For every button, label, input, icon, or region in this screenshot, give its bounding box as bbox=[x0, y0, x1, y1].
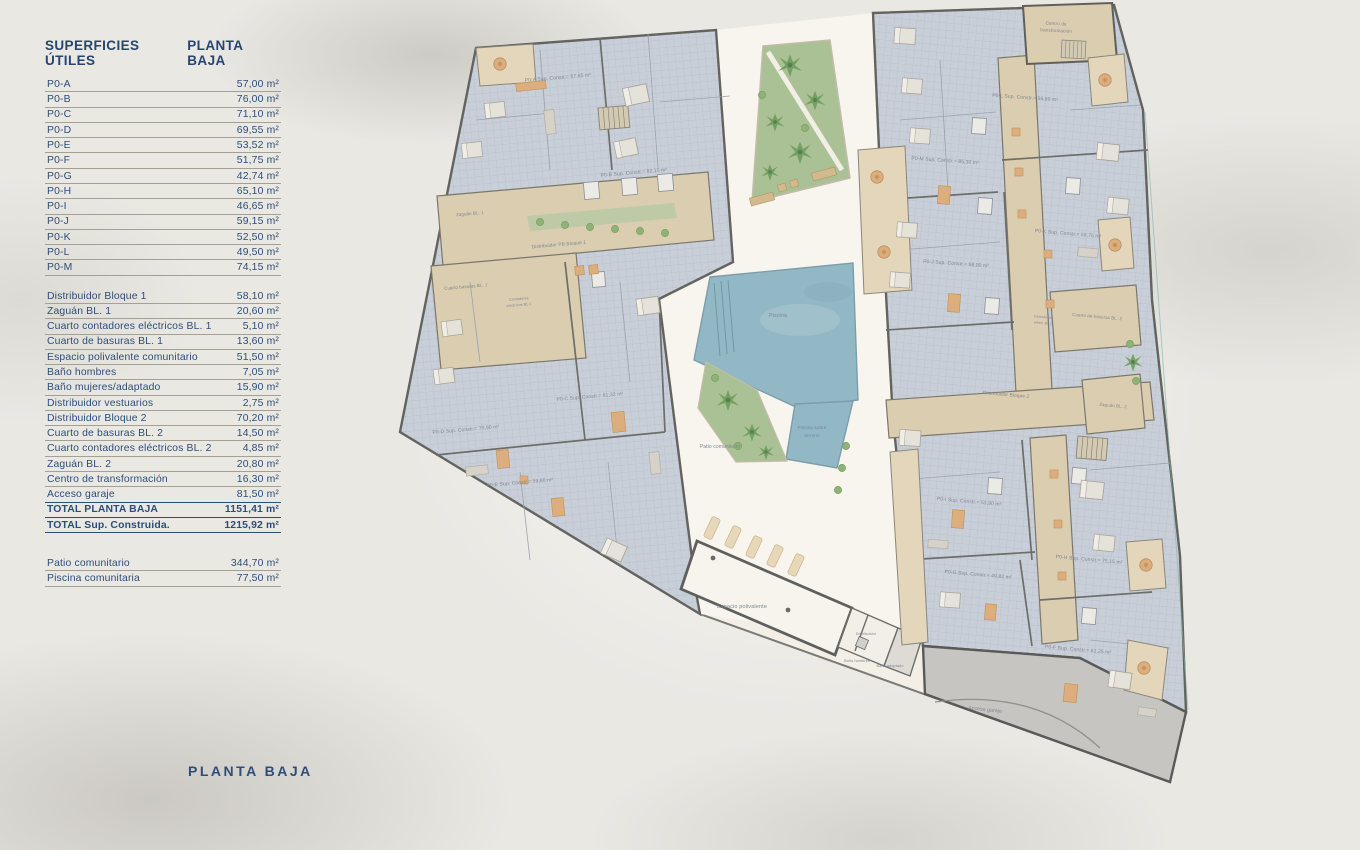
bush-icon bbox=[711, 374, 718, 381]
page: { "table": { "title_left": "SUPERFICIES … bbox=[0, 0, 1360, 850]
floor-plan: P0-A Sup. Constr.= 67,65 m² P0-B Sup. Co… bbox=[0, 0, 1360, 850]
bush-icon bbox=[842, 442, 849, 449]
stairs-icon bbox=[1076, 436, 1108, 461]
pool-label: Piscina bbox=[769, 313, 787, 319]
room-label: Distribuidor bbox=[856, 632, 877, 636]
stairs-icon bbox=[1061, 40, 1086, 59]
bush-icon bbox=[838, 464, 845, 471]
bush-icon bbox=[834, 486, 841, 493]
bush-icon bbox=[801, 124, 808, 131]
stairs-icon bbox=[598, 105, 630, 130]
bush-icon bbox=[758, 91, 765, 98]
patio-label: Patio comunitario bbox=[700, 444, 740, 450]
room-label: Espacio polivalente bbox=[717, 604, 767, 610]
room-label: Baño hombres bbox=[844, 659, 870, 663]
pool-label: terreno bbox=[804, 433, 820, 438]
room-label: Baño adaptado bbox=[876, 664, 903, 668]
zaguan-basuras-zone bbox=[431, 253, 586, 370]
pool-label: Piscina sobre bbox=[798, 425, 827, 430]
